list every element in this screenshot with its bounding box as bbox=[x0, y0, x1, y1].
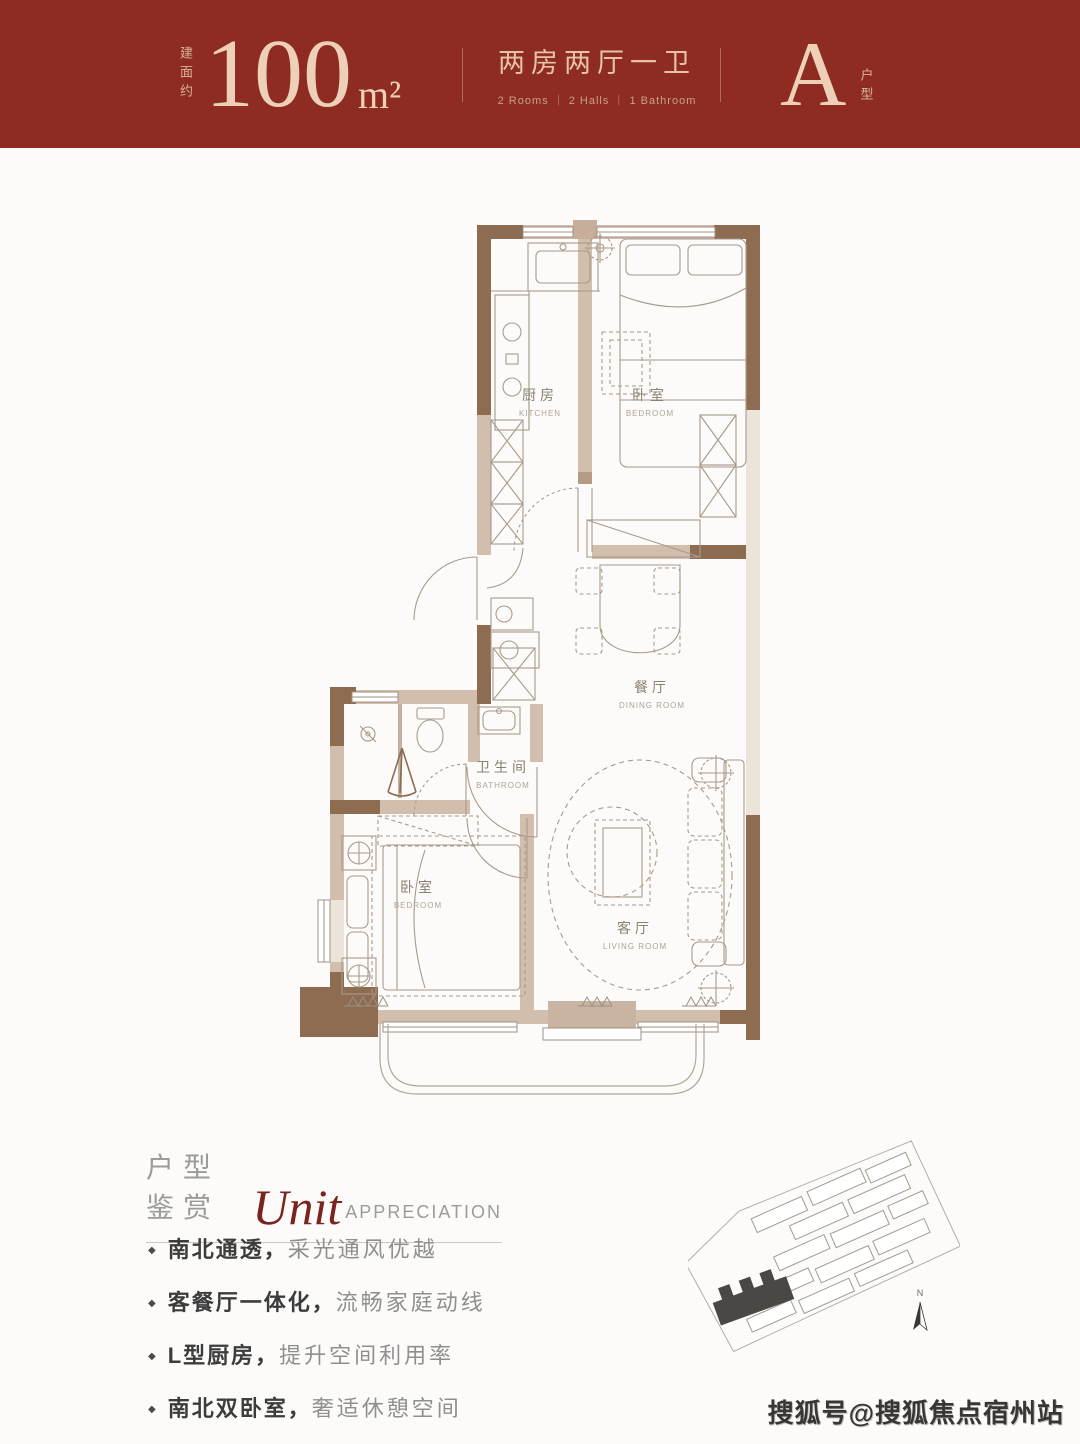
room-label-bedroom1-en: BEDROOM bbox=[626, 409, 674, 418]
dining-table bbox=[576, 565, 680, 654]
feature-item: ◆客餐厅一体化，流畅家庭动线 bbox=[148, 1285, 486, 1317]
north-arrow: N bbox=[913, 1288, 927, 1330]
layout-group: 两房两厅一卫 2 Rooms ｜ 2 Halls ｜ 1 Bathroom bbox=[492, 0, 702, 148]
kitchen-appliances bbox=[491, 598, 539, 668]
floorplan-svg: 厨房 KITCHEN 卧室 BEDROOM 餐厅 DINING ROOM 卫生间… bbox=[290, 200, 770, 1110]
feature-item: ◆L型厨房，提升空间利用率 bbox=[148, 1338, 486, 1370]
diamond-bullet-icon: ◆ bbox=[148, 1298, 156, 1309]
layout-cn: 两房两厅一卫 bbox=[498, 41, 696, 80]
room-label-kitchen-en: KITCHEN bbox=[519, 409, 561, 418]
floorplan-windows bbox=[318, 227, 718, 1040]
diamond-bullet-icon: ◆ bbox=[148, 1351, 156, 1362]
siteplan-svg: N bbox=[688, 1118, 960, 1370]
section-title-en: APPRECIATION bbox=[345, 1202, 502, 1226]
section-title: 户型鉴赏 Unit APPRECIATION bbox=[146, 1146, 502, 1243]
area-prefix-vertical: 建面约 bbox=[176, 46, 195, 103]
cabinets-right bbox=[587, 415, 736, 557]
balcony-outline bbox=[380, 1024, 704, 1094]
room-label-bedroom2-en: BEDROOM bbox=[394, 901, 442, 910]
diamond-bullet-icon: ◆ bbox=[148, 1245, 156, 1256]
area-unit: m² bbox=[358, 77, 401, 113]
section-title-script: Unit bbox=[252, 1189, 341, 1227]
balcony-lines bbox=[380, 1024, 704, 1094]
layout-en: 2 Rooms ｜ 2 Halls ｜ 1 Bathroom bbox=[498, 92, 697, 108]
poster-page: 建面约 100 m² 两房两厅一卫 2 Rooms ｜ 2 Halls ｜ 1 … bbox=[0, 0, 1080, 1444]
feature-list: ◆南北通透，采光通风优越 ◆客餐厅一体化，流畅家庭动线 ◆L型厨房，提升空间利用… bbox=[148, 1232, 486, 1444]
room-label-bathroom-en: BATHROOM bbox=[476, 781, 530, 790]
watermark-text: 搜狐号@搜狐焦点宿州站 bbox=[768, 1393, 1064, 1430]
unit-label-vertical: 户型 bbox=[856, 68, 875, 106]
room-label-living-cn: 客厅 bbox=[617, 920, 653, 936]
room-label-kitchen-cn: 厨房 bbox=[522, 387, 558, 403]
header-divider-2 bbox=[720, 48, 721, 102]
area-group: 建面约 100 m² bbox=[176, 0, 401, 148]
header-divider-1 bbox=[462, 48, 463, 102]
room-label-bedroom2-cn: 卧室 bbox=[400, 879, 436, 895]
room-label-bedroom1-cn: 卧室 bbox=[632, 387, 668, 403]
unit-type-group: A 户型 bbox=[780, 0, 875, 148]
room-label-living-en: LIVING ROOM bbox=[603, 942, 667, 951]
room-label-dining-en: DINING ROOM bbox=[619, 701, 685, 710]
bedroom1-bed bbox=[620, 239, 746, 467]
unit-letter: A bbox=[780, 35, 846, 113]
feature-item: ◆南北通透，采光通风优越 bbox=[148, 1232, 486, 1264]
diamond-bullet-icon: ◆ bbox=[148, 1404, 156, 1415]
room-label-bathroom-cn: 卫生间 bbox=[476, 759, 530, 775]
section-title-cn: 户型鉴赏 bbox=[146, 1146, 230, 1226]
living-room-furniture bbox=[548, 755, 744, 1006]
hall-cabinets-left bbox=[487, 420, 535, 700]
svg-text:N: N bbox=[917, 1288, 924, 1298]
header-band: 建面约 100 m² 两房两厅一卫 2 Rooms ｜ 2 Halls ｜ 1 … bbox=[0, 0, 1080, 148]
room-label-dining-cn: 餐厅 bbox=[634, 679, 670, 695]
feature-item: ◆南北双卧室，奢适休憩空间 bbox=[148, 1391, 486, 1423]
area-value: 100 bbox=[205, 35, 352, 113]
